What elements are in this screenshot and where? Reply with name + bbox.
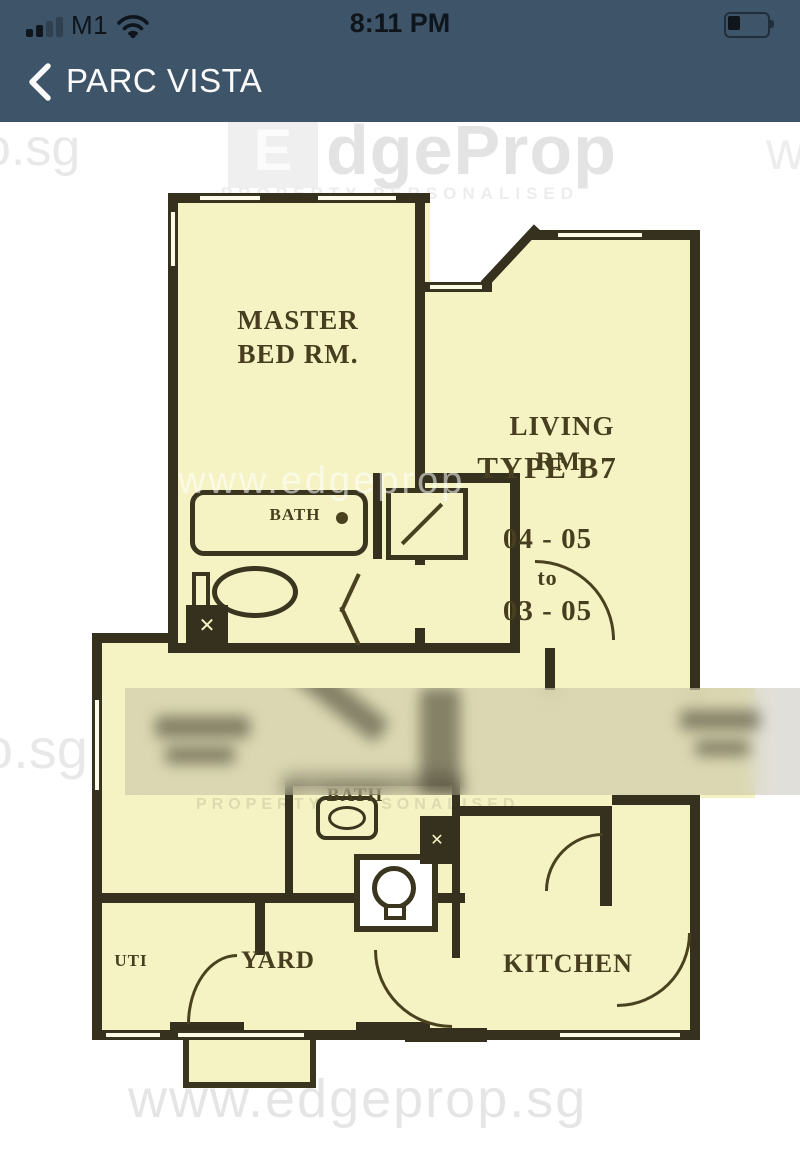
status-bar: M1 8:11 PM [0, 0, 800, 48]
nav-bar: PARC VISTA [0, 48, 800, 122]
battery-fill [728, 16, 740, 30]
window [318, 194, 396, 202]
room-label-yard: YARD [212, 948, 344, 974]
window [430, 283, 482, 291]
clock: 8:11 PM [0, 8, 800, 39]
app-screen: M1 8:11 PM PARC VISTA [0, 0, 800, 1159]
wall-segment [373, 473, 382, 559]
blurred-label-smudge [165, 746, 235, 764]
edgeprop-logo-text: dgeProp [326, 112, 617, 188]
blurred-label-smudge [155, 716, 250, 738]
blurred-label-smudge [695, 740, 750, 756]
wall-segment [460, 806, 612, 816]
wall-segment [92, 633, 178, 643]
room-label-master-1: MASTER [198, 306, 398, 334]
toilet-base-2 [384, 904, 406, 920]
unit-range-from: 04 - 05 [440, 524, 655, 554]
wall-segment [92, 893, 102, 1040]
battery-icon [724, 12, 770, 38]
wall-segment [285, 778, 293, 895]
room-label-master-2: BED RM. [198, 340, 398, 368]
door-sill [405, 1028, 487, 1042]
wall-segment [690, 795, 700, 1040]
wall-segment [690, 230, 700, 690]
sg-watermark-top-left: o.sg [0, 118, 80, 178]
wc-duct-box: ✕ [186, 605, 228, 645]
sg-watermark-mid-left: o.sg [0, 716, 88, 781]
planter-box [183, 1040, 316, 1088]
chevron-left-icon [26, 62, 52, 102]
header: M1 8:11 PM PARC VISTA [0, 0, 800, 122]
window [560, 1031, 680, 1039]
blurred-wall-smudge [280, 688, 391, 743]
back-button[interactable] [26, 62, 56, 106]
battery-nub [770, 20, 774, 28]
privacy-blur-band [125, 688, 800, 795]
unit-range-to: 03 - 05 [440, 596, 655, 626]
floor-plan-viewer[interactable]: E dgeProp PROPERTY PERSONALISED o.sg w w… [0, 122, 800, 1159]
floor-plan-image: E dgeProp PROPERTY PERSONALISED o.sg w w… [0, 0, 800, 1159]
window [178, 1031, 304, 1039]
window [106, 1031, 160, 1039]
blurred-label-smudge [680, 710, 760, 730]
edgeprop-logo-watermark: E dgeProp [228, 112, 617, 188]
blurred-wall-smudge [420, 688, 460, 795]
wall-segment [612, 795, 700, 805]
edgeprop-logo-e: E [228, 112, 318, 188]
window [169, 212, 177, 266]
room-label-kitchen: KITCHEN [492, 950, 644, 977]
page-title: PARC VISTA [66, 62, 262, 100]
sink-basin [328, 806, 366, 830]
room-label-bath-master: BATH [240, 506, 350, 524]
window [200, 194, 260, 202]
room-label-living-1: LIVING [462, 412, 662, 440]
window [558, 231, 642, 239]
plan-type-label: TYPE B7 [440, 452, 655, 485]
unit-range-connector: to [440, 566, 655, 589]
w-watermark-top-right: w [766, 120, 800, 182]
wall-segment [545, 648, 555, 690]
room-label-utility: UTI [103, 952, 159, 970]
window [93, 700, 101, 790]
wall-segment [452, 778, 460, 958]
service-duct-box: ✕ [420, 816, 454, 864]
